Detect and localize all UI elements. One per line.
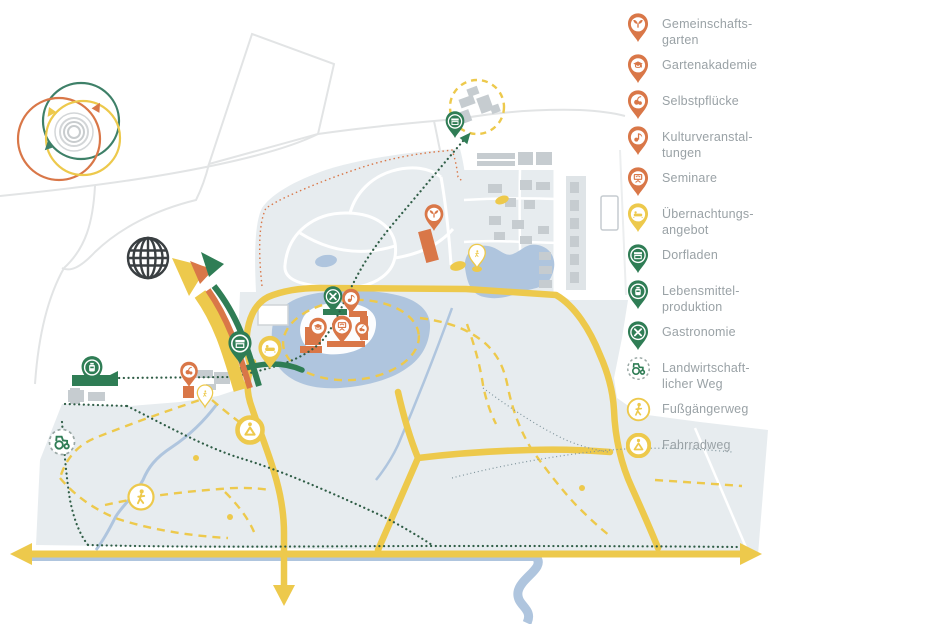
presentation-pin-icon [628, 167, 648, 196]
cyclist-circle-icon [626, 433, 652, 464]
legend-item-label: Gastronomie [662, 320, 736, 340]
crossed-cutlery-pin-icon [626, 320, 652, 351]
legend-item-gemeinschaftsgarten: Gemeinschafts- garten [626, 12, 816, 48]
fussgaengerweg-marker [129, 485, 154, 510]
legend-item-lebensmittelproduktion: Lebensmittel- produktion [626, 279, 816, 315]
legend-item-selbstpfluecke: Selbstpflücke [626, 89, 816, 120]
fahrradweg-marker [238, 418, 263, 443]
shop-pin-icon [628, 244, 648, 273]
tractor-circle-icon [628, 358, 650, 380]
legend-item-label: Kulturveranstal- tungen [662, 125, 753, 161]
legend-item-seminare: Seminare [626, 166, 816, 197]
legend-item-fussgaengerweg: Fußgängerweg [626, 397, 816, 428]
graduation-cap-pin-icon [628, 54, 648, 83]
selbstpfluecke-pin [180, 362, 198, 387]
shop-pin-icon [626, 243, 652, 274]
crossed-cutlery-pin-icon [628, 321, 648, 350]
berries-pin-icon [628, 90, 648, 119]
legend-item-gartenakademie: Gartenakademie [626, 53, 816, 84]
sprout-pin-icon [628, 13, 648, 42]
jar-pin-icon [628, 280, 648, 309]
orbit-circles-logo [18, 83, 120, 180]
dorfladen-pin [446, 111, 465, 138]
legend-item-label: Gartenakademie [662, 53, 757, 73]
dotted-arrow-ne-icon [460, 129, 475, 144]
arrow-west-icon [10, 543, 32, 565]
legend-item-label: Fahrradweg [662, 433, 731, 453]
graduation-cap-pin-icon [626, 53, 652, 84]
legend-item-label: Landwirtschaft- licher Weg [662, 356, 750, 392]
legend-item-label: Übernachtungs- angebot [662, 202, 754, 238]
berries-pin-icon [626, 89, 652, 120]
site-plan: Gemeinschafts- gartenGartenakademieSelbs… [0, 0, 936, 624]
cyclist-circle-icon [628, 435, 650, 457]
legend-item-label: Selbstpflücke [662, 89, 739, 109]
presentation-pin-icon [626, 166, 652, 197]
globe-icon [128, 238, 168, 278]
bed-pin-icon [626, 202, 652, 233]
legend-item-uebernachtungsangebot: Übernachtungs- angebot [626, 202, 816, 238]
tractor-circle-icon [626, 356, 652, 387]
sprout-pin-icon [626, 12, 652, 43]
pedestrian-circle-icon [626, 397, 652, 428]
music-note-pin-icon [626, 125, 652, 156]
legend-item-dorfladen: Dorfladen [626, 243, 816, 274]
legend-item-label: Fußgängerweg [662, 397, 748, 417]
legend-item-fahrradweg: Fahrradweg [626, 433, 816, 464]
legend-item-label: Dorfladen [662, 243, 718, 263]
legend-item-label: Lebensmittel- produktion [662, 279, 740, 315]
music-note-pin-icon [628, 126, 648, 155]
map-legend: Gemeinschafts- gartenGartenakademieSelbs… [626, 12, 816, 469]
legend-item-label: Seminare [662, 166, 717, 186]
legend-item-kulturveranstaltungen: Kulturveranstal- tungen [626, 125, 816, 161]
jar-pin-icon [626, 279, 652, 310]
legend-item-landwirtschaftlicherweg: Landwirtschaft- licher Weg [626, 356, 816, 392]
landwirtschaftlicherweg-marker [50, 430, 75, 455]
arrow-south-icon [273, 585, 295, 606]
bed-pin-icon [628, 203, 648, 232]
pedestrian-circle-icon [628, 399, 650, 421]
legend-item-label: Gemeinschafts- garten [662, 12, 752, 48]
legend-item-gastronomie: Gastronomie [626, 320, 816, 351]
